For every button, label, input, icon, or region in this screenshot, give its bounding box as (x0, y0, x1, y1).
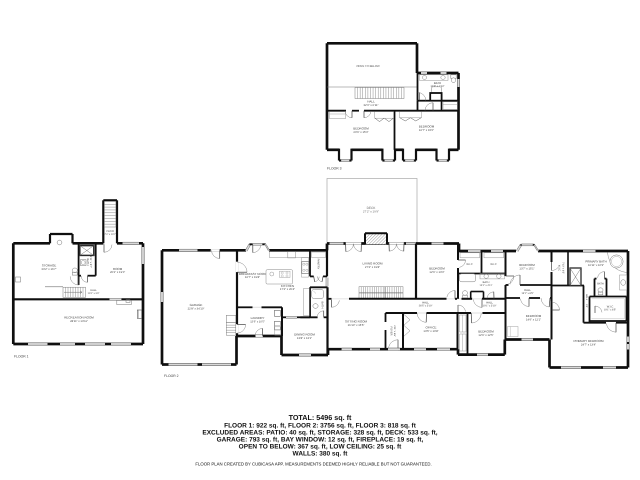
svg-text:7’10” x 6’5”: 7’10” x 6’5” (562, 262, 565, 274)
svg-text:W.I.C: W.I.C (558, 265, 561, 271)
svg-text:16’10” x 15’5”: 16’10” x 15’5” (348, 324, 365, 327)
svg-text:14’6” x 12’1”: 14’6” x 12’1” (526, 318, 541, 321)
svg-text:33’2” x 16’7”: 33’2” x 16’7” (41, 268, 56, 271)
svg-text:13’5” x 10’8”: 13’5” x 10’8” (423, 330, 438, 333)
svg-text:OFFICE: OFFICE (426, 326, 437, 330)
svg-text:OPEN TO BELOW: OPEN TO BELOW (356, 64, 380, 68)
svg-text:HALL: HALL (367, 100, 375, 104)
svg-text:FLOOR 1: FLOOR 1 (14, 355, 29, 359)
svg-text:BEDROOM: BEDROOM (519, 263, 535, 267)
svg-text:10’1” x 4’11”: 10’1” x 4’11” (480, 284, 493, 287)
svg-text:SITTING ROOM: SITTING ROOM (345, 320, 368, 324)
svg-text:PANTRY: PANTRY (317, 259, 320, 270)
svg-text:WALLS: 380 sq. ft: WALLS: 380 sq. ft (293, 450, 349, 457)
svg-text:32’0” x 6’11”: 32’0” x 6’11” (364, 104, 379, 107)
svg-text:BEDROOM: BEDROOM (419, 125, 435, 129)
svg-text:GARAGE: GARAGE (190, 303, 203, 307)
svg-text:KITCHEN: KITCHEN (281, 284, 294, 288)
svg-text:13’1” x 6’5”: 13’1” x 6’5” (521, 292, 533, 295)
svg-text:27’2” x 19’9”: 27’2” x 19’9” (363, 210, 379, 214)
svg-text:TOTAL: 5496 sq. ft: TOTAL: 5496 sq. ft (289, 413, 352, 422)
svg-text:LIVING ROOM: LIVING ROOM (362, 262, 383, 266)
svg-text:4’11” x 6’6”: 4’11” x 6’6” (393, 325, 396, 337)
svg-text:FLOOR 1: 922 sq. ft, FLOOR 2:: FLOOR 1: 922 sq. ft, FLOOR 2: 3756 sq. f… (224, 422, 417, 429)
svg-text:16’7” x 15’0”: 16’7” x 15’0” (419, 129, 434, 132)
svg-text:BATH: BATH (597, 282, 604, 285)
svg-text:BATH: BATH (321, 302, 324, 309)
svg-text:BEDROOM: BEDROOM (526, 314, 542, 318)
svg-text:EXCLUDED AREAS: PATIO: 40 sq.: EXCLUDED AREAS: PATIO: 40 sq. ft, STORAG… (202, 429, 437, 436)
svg-text:7’4” x 10’7”: 7’4” x 10’7” (104, 233, 116, 236)
svg-text:ROOM: ROOM (113, 267, 123, 271)
svg-text:12’6” x 12’5”: 12’6” x 12’5” (478, 334, 493, 337)
svg-text:STORAGE: STORAGE (42, 264, 57, 268)
svg-text:BATH: BATH (86, 259, 89, 266)
svg-text:W.I.C: W.I.C (490, 263, 496, 266)
svg-text:HALL: HALL (585, 294, 588, 301)
svg-text:27’2” x 19’8”: 27’2” x 19’8” (365, 266, 380, 269)
svg-text:24’7” x 13’4”: 24’7” x 13’4” (581, 343, 596, 346)
svg-text:13’7” x 15’1”: 13’7” x 15’1” (519, 267, 534, 270)
svg-text:DINING ROOM: DINING ROOM (294, 333, 315, 337)
svg-text:BEDROOM: BEDROOM (429, 267, 445, 271)
svg-text:10’1” x 6’5”: 10’1” x 6’5” (604, 309, 616, 312)
svg-text:FLOOR 3: FLOOR 3 (327, 167, 342, 171)
svg-text:BEDROOM: BEDROOM (478, 330, 494, 334)
svg-text:28’11” x 13’11”: 28’11” x 13’11” (70, 320, 88, 323)
svg-text:FLOOR 2: FLOOR 2 (164, 374, 179, 378)
svg-text:20’2” x 19’0”: 20’2” x 19’0” (110, 271, 125, 274)
svg-text:GARAGE: 793 sq. ft, BAY WINDOW: GARAGE: 793 sq. ft, BAY WINDOW: 12 sq. f… (217, 436, 424, 443)
svg-text:12’6” x 13’0”: 12’6” x 13’0” (429, 271, 444, 274)
svg-text:BEDROOM: BEDROOM (353, 127, 369, 131)
svg-text:FLOOR PLAN CREATED BY CUBICASA: FLOOR PLAN CREATED BY CUBICASA APP. MEAS… (195, 462, 431, 467)
svg-text:22’8” x 34’10”: 22’8” x 34’10” (188, 307, 205, 310)
svg-text:OPEN TO BELOW: 367 sq. ft, LOW: OPEN TO BELOW: 367 sq. ft, LOW CEILING: … (239, 443, 402, 450)
svg-text:26’5” x 3’10”: 26’5” x 3’10” (419, 305, 433, 308)
svg-text:BREAKFAST NOOK: BREAKFAST NOOK (239, 272, 266, 276)
svg-text:13’8” x 13’1”: 13’8” x 13’1” (297, 337, 312, 340)
svg-text:16’7” x 19’8”: 16’7” x 19’8” (245, 276, 260, 279)
svg-text:10’1” x 3’10”: 10’1” x 3’10” (483, 305, 497, 308)
svg-text:16’11” x 10’9”: 16’11” x 10’9” (588, 264, 604, 267)
svg-text:10’1” x 3’0”: 10’1” x 3’0” (88, 292, 100, 295)
svg-text:9’2”: 9’2” (585, 304, 588, 308)
svg-text:W.I.C: W.I.C (466, 263, 472, 266)
svg-text:RECREATION ROOM: RECREATION ROOM (64, 316, 94, 320)
svg-text:17’2” x 20’4”: 17’2” x 20’4” (280, 288, 295, 291)
svg-text:4’11” x 8’7”: 4’11” x 8’7” (89, 256, 92, 268)
svg-text:13’6” x 10’5”: 13’6” x 10’5” (250, 321, 265, 324)
svg-text:FOYER: FOYER (390, 327, 393, 336)
svg-text:20’6” x 15’0”: 20’6” x 15’0” (353, 131, 368, 134)
svg-text:PRIMARY BEDROOM: PRIMARY BEDROOM (574, 339, 604, 343)
